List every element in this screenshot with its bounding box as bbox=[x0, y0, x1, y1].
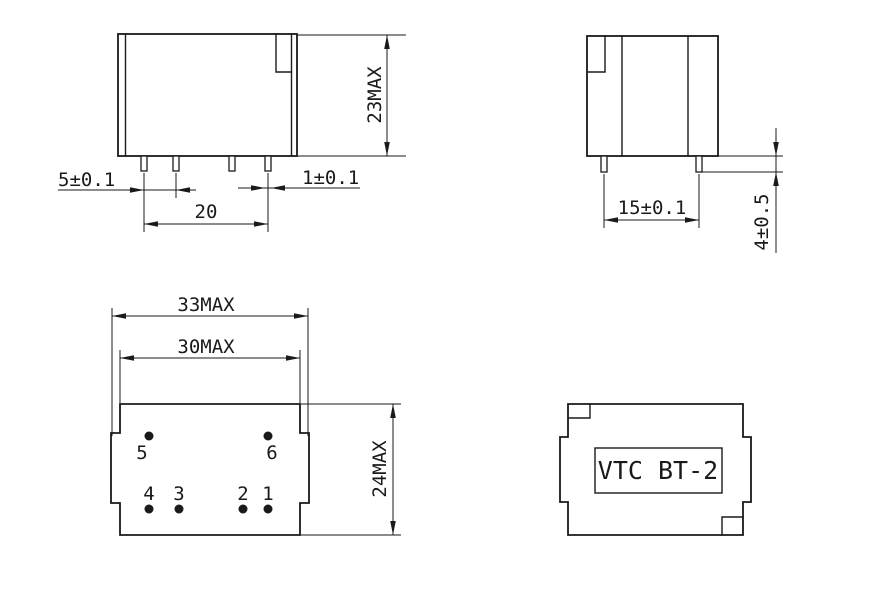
dim-side-pin-pitch-label: 15±0.1 bbox=[618, 197, 687, 219]
side-view: 15±0.1 4±0.5 bbox=[587, 36, 783, 253]
dim-arrow bbox=[685, 217, 699, 223]
dim-arrow bbox=[144, 221, 158, 227]
dim-pin-span-label: 20 bbox=[195, 201, 218, 223]
pin-label-2: 2 bbox=[237, 483, 248, 505]
dim-pin-length-label: 4±0.5 bbox=[751, 193, 773, 250]
part-number-label: VTC BT-2 bbox=[598, 456, 718, 485]
dim-arrow bbox=[286, 355, 300, 361]
dim-arrow bbox=[604, 217, 618, 223]
dim-arrow bbox=[176, 187, 190, 193]
pin-dot-6 bbox=[264, 432, 273, 441]
pin-dot-5 bbox=[145, 432, 154, 441]
dim-arrow bbox=[271, 185, 285, 191]
dim-height-label: 23MAX bbox=[364, 66, 386, 124]
front-pin-3 bbox=[229, 156, 235, 171]
front-pin-1 bbox=[141, 156, 147, 171]
pin-label-1: 1 bbox=[262, 483, 273, 505]
dim-arrow bbox=[120, 355, 134, 361]
bottom-view-pins: 5 6 4 3 2 1 bbox=[136, 432, 277, 514]
dim-arrow bbox=[130, 187, 144, 193]
dim-arrow bbox=[773, 142, 779, 156]
front-pin-2 bbox=[173, 156, 179, 171]
side-pin-right bbox=[696, 156, 702, 172]
top-corner-notch-bottomright bbox=[722, 517, 743, 535]
dim-arrow bbox=[294, 313, 308, 319]
pin-label-6: 6 bbox=[266, 442, 277, 464]
dim-arrow bbox=[251, 185, 265, 191]
front-pin-4 bbox=[265, 156, 271, 171]
drawing-canvas: 5±0.1 1±0.1 20 23MAX bbox=[0, 0, 869, 589]
dim-arrow bbox=[384, 35, 390, 49]
dim-arrow bbox=[773, 172, 779, 186]
pin-label-5: 5 bbox=[136, 442, 147, 464]
pin-dot-3 bbox=[175, 505, 184, 514]
dim-pin-pitch-label: 5±0.1 bbox=[58, 169, 115, 191]
side-body-outline bbox=[587, 36, 718, 156]
front-body-outline bbox=[118, 34, 297, 156]
side-view-dimensions: 15±0.1 4±0.5 bbox=[604, 128, 783, 253]
top-view: VTC BT-2 bbox=[560, 404, 751, 535]
bottom-view: 5 6 4 3 2 1 33MAX 30MAX bbox=[111, 294, 401, 535]
dim-arrow bbox=[390, 521, 396, 535]
dim-arrow bbox=[112, 313, 126, 319]
dim-body-depth-label: 24MAX bbox=[369, 440, 391, 498]
pin-label-4: 4 bbox=[143, 483, 154, 505]
front-view-dimensions: 5±0.1 1±0.1 20 23MAX bbox=[58, 35, 406, 232]
front-view: 5±0.1 1±0.1 20 23MAX bbox=[58, 34, 406, 232]
bottom-body-outline bbox=[111, 404, 309, 535]
pin-dot-1 bbox=[264, 505, 273, 514]
side-pin-left bbox=[601, 156, 607, 172]
front-corner-notch bbox=[276, 34, 292, 72]
technical-drawing: 5±0.1 1±0.1 20 23MAX bbox=[0, 0, 869, 589]
pin-label-3: 3 bbox=[173, 483, 184, 505]
front-view-body bbox=[118, 34, 297, 171]
dim-arrow bbox=[254, 221, 268, 227]
dim-arrow bbox=[390, 404, 396, 418]
dim-pin-width-label: 1±0.1 bbox=[302, 167, 359, 189]
bottom-view-dimensions: 33MAX 30MAX 24MAX bbox=[112, 294, 401, 535]
top-corner-notch-topleft bbox=[568, 404, 590, 418]
side-view-body bbox=[587, 36, 718, 172]
side-corner-notch bbox=[587, 36, 605, 72]
pin-dot-2 bbox=[239, 505, 248, 514]
dim-overall-width-label: 33MAX bbox=[177, 294, 235, 316]
pin-dot-4 bbox=[145, 505, 154, 514]
dim-body-width-label: 30MAX bbox=[177, 336, 235, 358]
dim-arrow bbox=[384, 142, 390, 156]
